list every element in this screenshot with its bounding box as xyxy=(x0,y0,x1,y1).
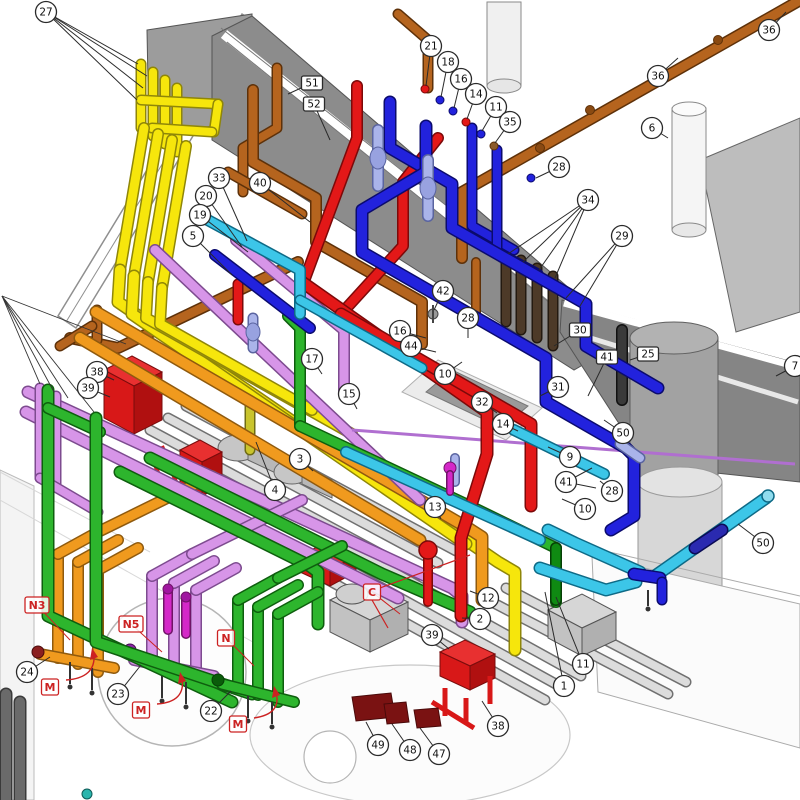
callout-label: 14 xyxy=(496,419,510,431)
callout-label: 14 xyxy=(469,89,483,101)
left-fan-line1 xyxy=(2,296,40,384)
callout-M: M xyxy=(230,716,247,732)
callout-label: 33 xyxy=(212,173,225,185)
callout-label: 41 xyxy=(559,477,572,489)
bolt1-head xyxy=(68,685,73,690)
callout-label: 50 xyxy=(616,428,629,440)
callout-label: M xyxy=(136,704,147,717)
wall-flange-blue3 xyxy=(477,130,485,138)
callout-label: 50 xyxy=(756,538,769,550)
copper-flange4 xyxy=(536,144,545,153)
callout-label: M xyxy=(45,681,56,694)
callout-label: 18 xyxy=(441,57,454,69)
callout-label: 9 xyxy=(567,452,574,464)
wall-flange-blue1 xyxy=(436,96,444,104)
callout-label: 52 xyxy=(307,99,320,111)
callout-label: 17 xyxy=(305,354,318,366)
callout-label: 36 xyxy=(651,71,665,83)
leader-line xyxy=(523,200,588,262)
callout-label: 28 xyxy=(552,162,565,174)
callout-label: M xyxy=(233,718,244,731)
leader-line xyxy=(46,12,147,76)
red-pump-volute xyxy=(419,541,437,559)
bolt7-head xyxy=(646,607,651,612)
callout-15: 15 xyxy=(339,384,360,410)
wall-flange-red2 xyxy=(462,118,470,126)
callout-label: 12 xyxy=(481,593,494,605)
left-fan-line2 xyxy=(2,296,54,392)
callout-M: M xyxy=(133,702,150,718)
callout-label: 38 xyxy=(90,367,103,379)
wall-flange-red1 xyxy=(421,85,429,93)
callout-label: 3 xyxy=(297,454,304,466)
callout-28: 28 xyxy=(458,308,479,339)
callout-label: 42 xyxy=(436,286,449,298)
bolt6-head xyxy=(270,725,275,730)
wall-flange-brown xyxy=(490,142,498,150)
white-cylinder-top-base xyxy=(487,79,521,93)
callout-label: 25 xyxy=(641,349,654,361)
callout-label: 11 xyxy=(576,659,589,671)
callout-label: 40 xyxy=(253,178,266,190)
callout-label: 34 xyxy=(581,195,595,207)
callout-12: 12 xyxy=(470,588,499,609)
callout-3: 3 xyxy=(290,449,314,472)
white-cylinder-top xyxy=(487,2,521,86)
callout-label: 38 xyxy=(491,721,504,733)
callout-label: 41 xyxy=(600,352,613,364)
white-cylinder-right xyxy=(672,108,706,230)
callout-label: 15 xyxy=(342,389,355,401)
callout-label: C xyxy=(368,586,376,599)
callout-label: 51 xyxy=(305,78,318,90)
right-light-wall xyxy=(700,118,800,332)
callout-label: 2 xyxy=(477,614,484,626)
cyan-cap xyxy=(762,490,774,502)
blue-assembly-elbow xyxy=(634,574,660,578)
wall-flange-blue4 xyxy=(527,174,535,182)
callout-label: 30 xyxy=(573,325,586,337)
callout-label: 21 xyxy=(424,41,437,53)
orange-manifold-cap xyxy=(32,646,44,658)
callout-9: 9 xyxy=(548,447,581,468)
callout-44: 44 xyxy=(401,336,437,357)
leader-line xyxy=(539,200,588,270)
callout-28: 28 xyxy=(536,157,570,179)
callout-label: 48 xyxy=(403,745,416,757)
callout-label: 35 xyxy=(503,117,516,129)
yellow-header1 xyxy=(141,100,218,104)
callout-label: N5 xyxy=(123,618,140,631)
drawing-page: 2721181614113536366283429731304125509412… xyxy=(0,0,800,800)
callout-label: 7 xyxy=(792,361,799,373)
callout-label: 32 xyxy=(475,397,488,409)
callout-label: 10 xyxy=(578,504,591,516)
light-tank-top xyxy=(638,467,722,497)
callout-14: 14 xyxy=(466,84,487,120)
copper-flange3 xyxy=(586,106,595,115)
bolt4-head xyxy=(184,705,189,710)
callout-label: 23 xyxy=(111,689,124,701)
callout-label: 6 xyxy=(649,123,656,135)
callout-50: 50 xyxy=(738,524,774,554)
callout-label: 36 xyxy=(762,25,776,37)
leader-line xyxy=(580,236,622,306)
callout-label: 39 xyxy=(425,630,438,642)
callout-label: N xyxy=(221,632,230,645)
callout-label: 16 xyxy=(393,326,407,338)
housekeeping-pad2 xyxy=(384,702,409,724)
leader-line xyxy=(508,200,588,254)
magenta-cap1 xyxy=(163,584,173,594)
callout-label: 20 xyxy=(199,191,212,203)
callout-label: N3 xyxy=(29,599,46,612)
callout-label: 47 xyxy=(432,749,445,761)
wall-flange-blue2 xyxy=(449,107,457,115)
callout-M: M xyxy=(42,679,59,695)
white-cylinder-right-base xyxy=(672,223,706,237)
callout-label: 49 xyxy=(371,740,384,752)
callout-label: 31 xyxy=(551,382,564,394)
callout-label: 28 xyxy=(461,313,474,325)
periwinkle-valve3-body xyxy=(246,323,260,341)
leader-line xyxy=(46,12,143,88)
callout-label: 11 xyxy=(489,102,502,114)
callout-label: 24 xyxy=(20,667,34,679)
callout-label: 29 xyxy=(615,231,628,243)
teal-corner-fitting xyxy=(82,789,92,799)
white-cylinder-right-top xyxy=(672,102,706,116)
callout-label: 4 xyxy=(272,485,279,497)
leader-line xyxy=(566,236,622,298)
periwinkle-valve2-body xyxy=(420,177,436,199)
callout-27: 27 xyxy=(36,2,148,101)
callout-6: 6 xyxy=(642,118,669,139)
callout-label: 16 xyxy=(454,74,468,86)
copper-flange1 xyxy=(714,36,723,45)
callout-label: 13 xyxy=(428,502,441,514)
callout-label: 1 xyxy=(561,681,568,693)
callout-label: 5 xyxy=(190,231,197,243)
callout-label: 27 xyxy=(39,7,52,19)
callout-label: 39 xyxy=(81,383,94,395)
callout-label: 28 xyxy=(605,486,618,498)
housekeeping-pad3 xyxy=(414,708,441,728)
callout-10: 10 xyxy=(562,499,596,520)
piping-isometric-drawing: 2721181614113536366283429731304125509412… xyxy=(0,0,800,800)
magenta-cap2 xyxy=(181,592,191,602)
periwinkle-valve1-body xyxy=(370,147,386,169)
callout-label: 22 xyxy=(204,706,217,718)
callout-28: 28 xyxy=(600,481,623,502)
green-manifold-cap xyxy=(212,674,224,686)
callout-label: 44 xyxy=(404,341,418,353)
callout-label: 19 xyxy=(193,210,206,222)
bolt2-head xyxy=(90,691,95,696)
bottom-small-tank-head xyxy=(304,731,356,783)
callout-label: 10 xyxy=(438,369,451,381)
